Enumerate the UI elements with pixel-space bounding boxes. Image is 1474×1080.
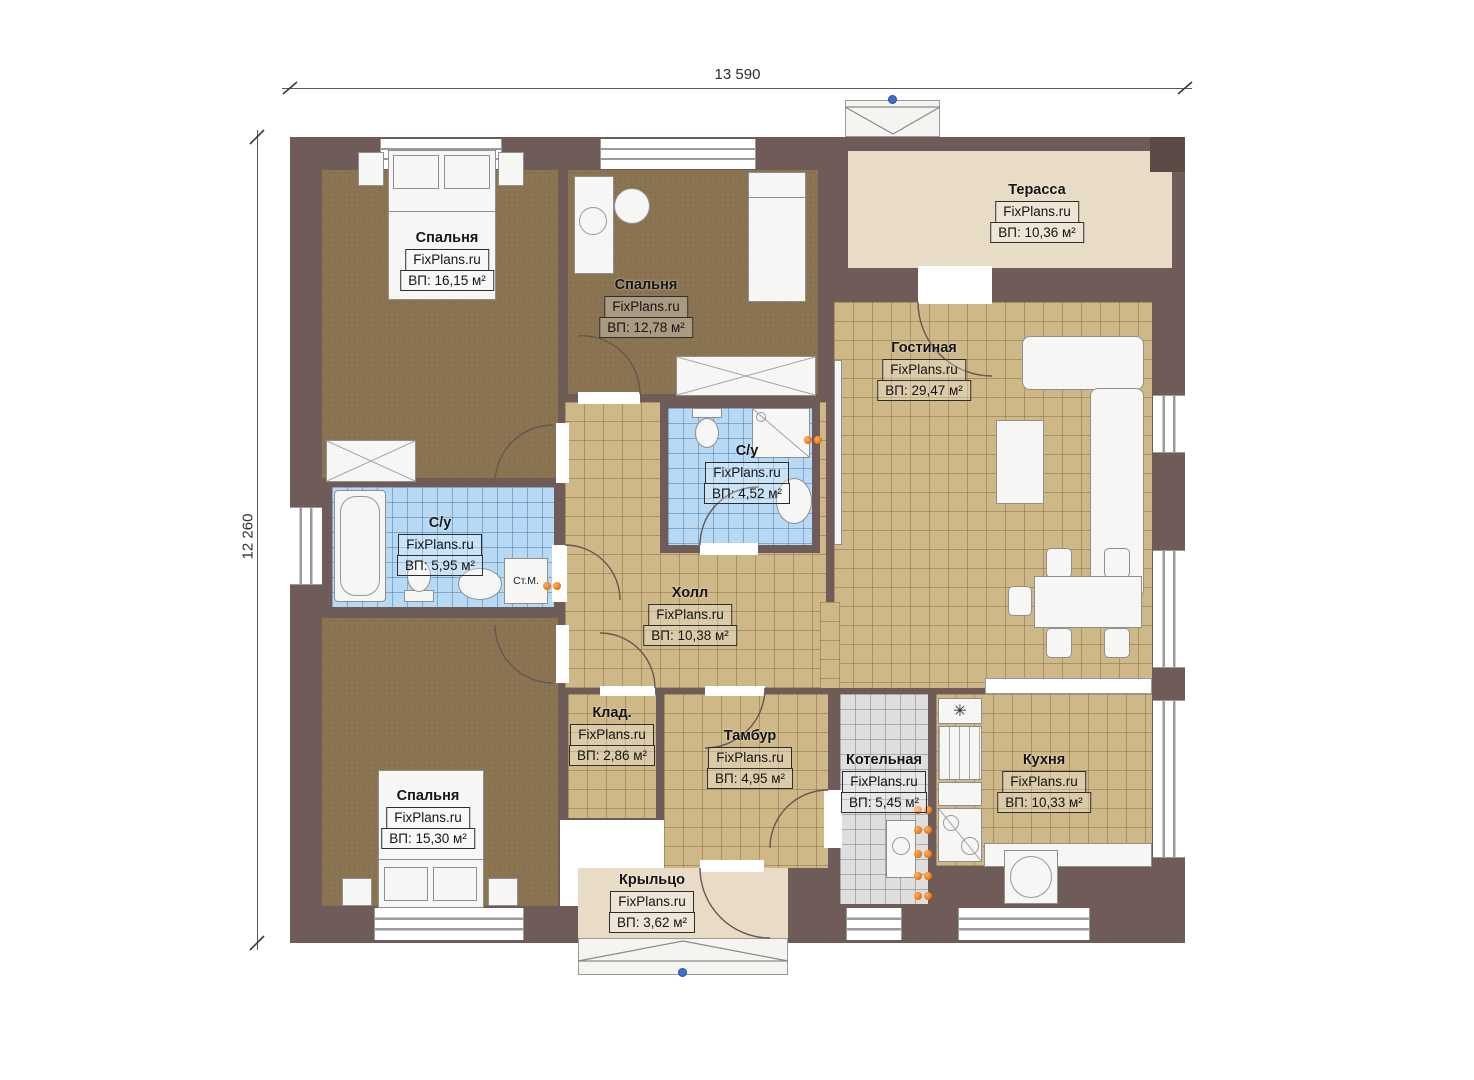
door-opening-bedroom-3 <box>556 625 569 683</box>
watermark: FixPlans.ru <box>610 891 694 913</box>
stove <box>938 808 982 862</box>
door-opening-bathroom-left <box>552 545 567 602</box>
room-area: ВП: 5,95 м² <box>397 555 483 577</box>
dimension-height-label: 12 260 <box>240 497 257 577</box>
room-name: С/у <box>429 515 452 531</box>
sofa-section <box>1022 336 1144 390</box>
room-label-boiler: Котельная FixPlans.ru ВП: 5,45 м² <box>841 752 927 813</box>
door-opening-bedroom-1 <box>556 423 569 483</box>
watermark: FixPlans.ru <box>705 462 789 484</box>
toilet-tank <box>692 408 722 418</box>
canopy-marker-top <box>888 95 897 104</box>
room-area: ВП: 2,86 м² <box>569 745 655 767</box>
door-opening-entry <box>700 860 764 872</box>
room-area: ВП: 5,45 м² <box>841 792 927 814</box>
room-label-bedroom-2: Спальня FixPlans.ru ВП: 12,78 м² <box>599 277 693 338</box>
kitchen-bar-counter <box>985 678 1152 694</box>
nightstand <box>498 152 524 186</box>
boiler-dial <box>892 837 910 855</box>
radiator-panel <box>834 360 842 545</box>
room-area: ВП: 15,30 м² <box>381 828 475 850</box>
shower-head <box>756 412 766 422</box>
door-opening-storage <box>600 686 655 696</box>
watermark: FixPlans.ru <box>398 534 482 556</box>
desk <box>574 176 614 274</box>
watermark: FixPlans.ru <box>995 201 1079 223</box>
washing-machine: Ст.М. <box>504 558 548 604</box>
room-label-storage: Клад. FixPlans.ru ВП: 2,86 м² <box>569 705 655 766</box>
pillow-line <box>749 197 805 198</box>
pillow <box>384 867 428 901</box>
room-area: ВП: 29,47 м² <box>877 380 971 402</box>
terrace-corner-pillar <box>1150 137 1185 172</box>
window-kitchen-bottom <box>958 908 1090 940</box>
watermark: FixPlans.ru <box>882 359 966 381</box>
floor-plan-page: 13 590 12 260 <box>0 0 1474 1080</box>
radiator-dots <box>914 850 932 858</box>
watermark: FixPlans.ru <box>604 296 688 318</box>
nightstand <box>488 878 518 906</box>
fridge <box>938 726 982 780</box>
dimension-line-left <box>257 130 258 950</box>
room-name: Терасса <box>1008 182 1066 198</box>
door-opening-bathroom-main <box>700 543 758 555</box>
watermark: FixPlans.ru <box>570 724 654 746</box>
single-bed <box>748 172 806 302</box>
window-living-1 <box>1153 395 1185 453</box>
dining-chair <box>1104 548 1130 578</box>
room-label-bathroom-left: С/у FixPlans.ru ВП: 5,95 м² <box>397 515 483 576</box>
vent-hob-icon: ✳ <box>938 698 982 724</box>
nightstand <box>342 878 372 906</box>
pillow <box>444 155 490 189</box>
kitchen-table <box>1004 850 1058 904</box>
room-name: Холл <box>672 585 708 601</box>
kitchen-table-top <box>1010 856 1052 898</box>
burner <box>943 815 959 831</box>
pillow <box>433 867 477 901</box>
radiator-dots <box>914 826 932 834</box>
door-opening-terrace <box>918 266 992 304</box>
window-bathroom-left <box>290 507 322 585</box>
room-label-bedroom-3: Спальня FixPlans.ru ВП: 15,30 м² <box>381 788 475 849</box>
room-name: Клад. <box>592 705 631 721</box>
window-living-2 <box>1153 550 1185 668</box>
room-name: Спальня <box>397 788 460 804</box>
room-area: ВП: 10,38 м² <box>643 625 737 647</box>
room-label-bathroom-main: С/у FixPlans.ru ВП: 4,52 м² <box>704 443 790 504</box>
window-kitchen-side <box>1153 700 1185 858</box>
door-opening-vestibule-hall <box>705 686 765 696</box>
vent-symbol: ✳ <box>953 701 966 721</box>
coffee-table <box>996 420 1044 504</box>
room-name: Тамбур <box>724 728 777 744</box>
terrace-canopy <box>845 100 940 137</box>
watermark: FixPlans.ru <box>708 747 792 769</box>
room-area: ВП: 4,52 м² <box>704 483 790 505</box>
dining-chair <box>1104 628 1130 658</box>
dining-chair <box>1046 548 1072 578</box>
room-label-kitchen: Кухня FixPlans.ru ВП: 10,33 м² <box>997 752 1091 813</box>
watermark: FixPlans.ru <box>648 604 732 626</box>
radiator-dots <box>914 872 932 880</box>
room-label-porch: Крыльцо FixPlans.ru ВП: 3,62 м² <box>609 872 695 933</box>
room-label-living: Гостиная FixPlans.ru ВП: 29,47 м² <box>877 340 971 401</box>
watermark: FixPlans.ru <box>1002 771 1086 793</box>
room-area: ВП: 16,15 м² <box>400 270 494 292</box>
dining-table <box>1034 576 1142 628</box>
boiler-unit <box>886 820 916 878</box>
radiator-dots <box>914 892 932 900</box>
canopy-marker-bottom <box>678 968 687 977</box>
dimension-width-label: 13 590 <box>290 66 1185 83</box>
door-opening-bedroom-2 <box>578 392 640 404</box>
watermark: FixPlans.ru <box>842 771 926 793</box>
room-area: ВП: 10,36 м² <box>990 222 1084 244</box>
bathtub <box>334 490 386 602</box>
radiator-dots <box>804 436 822 444</box>
room-area: ВП: 3,62 м² <box>609 912 695 934</box>
room-area: ВП: 10,33 м² <box>997 792 1091 814</box>
wardrobe <box>326 440 416 482</box>
room-label-vestibule: Тамбур FixPlans.ru ВП: 4,95 м² <box>707 728 793 789</box>
watermark: FixPlans.ru <box>405 249 489 271</box>
nightstand <box>358 152 384 186</box>
room-name: Крыльцо <box>619 872 685 888</box>
window-boiler <box>846 908 902 940</box>
room-name: С/у <box>736 443 759 459</box>
room-label-hall: Холл FixPlans.ru ВП: 10,38 м² <box>643 585 737 646</box>
dining-chair <box>1008 586 1032 616</box>
blanket-line <box>379 859 483 860</box>
room-name: Спальня <box>615 277 678 293</box>
blanket-line <box>389 211 495 212</box>
dimension-line-top <box>282 88 1192 89</box>
room-label-bedroom-1: Спальня FixPlans.ru ВП: 16,15 м² <box>400 230 494 291</box>
watermark: FixPlans.ru <box>386 807 470 829</box>
burner <box>961 837 979 855</box>
hall-living-passage <box>820 602 840 688</box>
room-name: Гостиная <box>891 340 957 356</box>
door-opening-vestibule-boiler <box>824 790 842 848</box>
room-label-terrace: Терасса FixPlans.ru ВП: 10,36 м² <box>990 182 1084 243</box>
room-name: Котельная <box>846 752 922 768</box>
room-name: Спальня <box>416 230 479 246</box>
washing-machine-label: Ст.М. <box>513 575 539 587</box>
room-name: Кухня <box>1023 752 1065 768</box>
pillow <box>393 155 439 189</box>
room-area: ВП: 12,78 м² <box>599 317 693 339</box>
kitchen-counter <box>938 782 982 806</box>
desk-chair <box>614 188 650 224</box>
bathtub-inner <box>340 496 380 596</box>
mirror <box>579 207 607 235</box>
dining-chair <box>1046 628 1072 658</box>
room-area: ВП: 4,95 м² <box>707 768 793 790</box>
window-bedroom-2 <box>600 139 756 169</box>
wardrobe <box>676 356 816 396</box>
radiator-dots <box>543 582 561 590</box>
window-bedroom-3 <box>374 908 524 940</box>
